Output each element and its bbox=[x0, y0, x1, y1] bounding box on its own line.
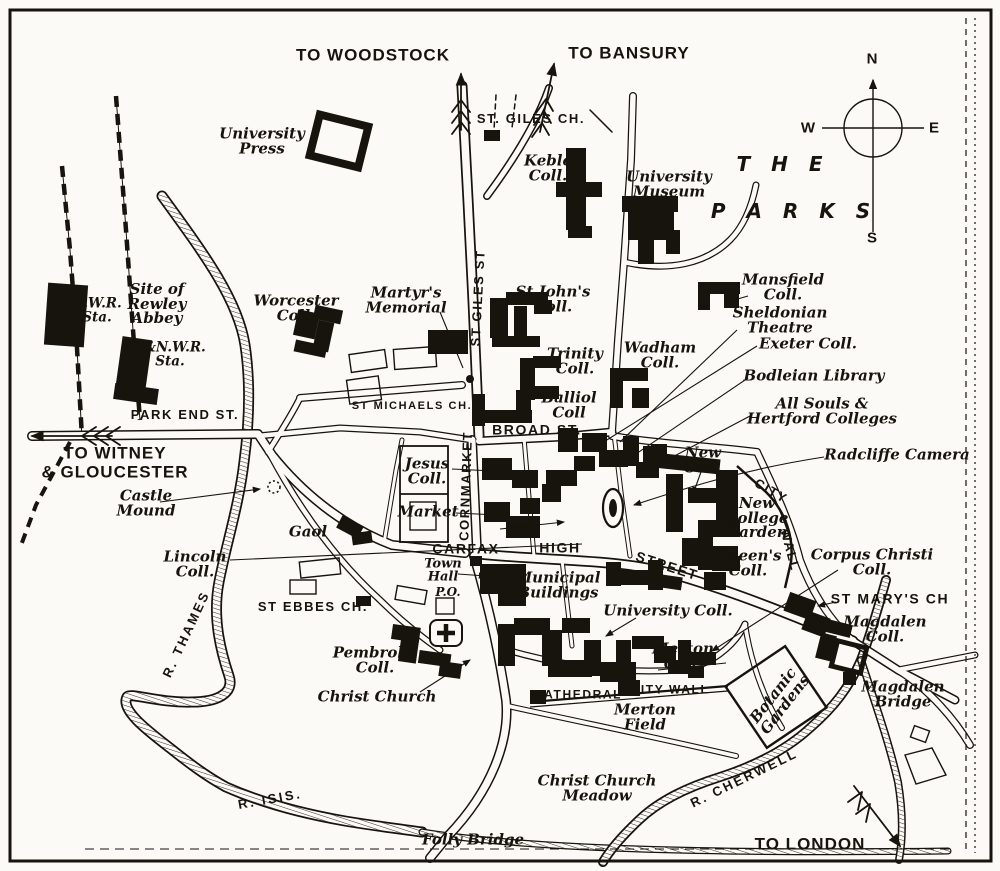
label-exeter-college: Exeter Coll. bbox=[759, 337, 857, 352]
label-river-isis: R. ISIS. bbox=[237, 787, 303, 811]
label-the-parks-line2: P A R K S bbox=[711, 201, 877, 221]
label-botanic-gardens: Botanic Gardens bbox=[746, 663, 812, 736]
label-st-giles-street: ST GILES ST bbox=[469, 249, 488, 347]
label-cornmarket: CORNMARKET bbox=[457, 431, 474, 541]
label-st-johns-college: St John's Coll. bbox=[516, 284, 591, 313]
label-compass-n: N bbox=[867, 52, 878, 67]
label-christ-church-meadow: Christ Church Meadow bbox=[538, 773, 657, 802]
label-wadham-college: Wadham Coll. bbox=[624, 340, 696, 369]
label-street: STREET bbox=[634, 549, 700, 583]
label-new-college: New Coll. bbox=[684, 445, 723, 474]
label-cathedral: CATHEDRAL bbox=[534, 689, 622, 702]
label-christ-church: Christ Church bbox=[318, 690, 437, 705]
label-river-thames: R. THAMES bbox=[160, 589, 212, 680]
label-corpus-christi-college: Corpus Christi Coll. bbox=[811, 547, 933, 576]
label-market: Market bbox=[397, 505, 458, 520]
oxford-street-map: TO WOODSTOCKTO BANSURYUniversity PressST… bbox=[0, 0, 1000, 871]
label-to-woodstock: TO WOODSTOCK bbox=[296, 47, 450, 66]
label-jesus-college: Jesus Coll. bbox=[405, 456, 449, 485]
label-university-press: University Press bbox=[219, 126, 305, 155]
label-gaol: Gaol bbox=[289, 525, 327, 540]
label-keble-college: Keble Coll. bbox=[524, 153, 572, 182]
label-balliol-college: Balliol Coll bbox=[541, 390, 596, 419]
label-lincoln-college: Lincoln Coll. bbox=[164, 549, 227, 578]
label-queens-college: Queen's Coll. bbox=[714, 548, 781, 577]
label-compass-s: S bbox=[867, 231, 877, 246]
label-university-museum: University Museum bbox=[626, 169, 712, 198]
label-merton-college: Merton Coll. bbox=[652, 641, 714, 670]
label-lnwr-station: L&N.W.R. Sta. bbox=[134, 342, 206, 369]
label-park-end-street: PARK END ST. bbox=[131, 408, 240, 422]
label-castle-mound: Castle Mound bbox=[117, 488, 176, 517]
label-to-london: TO LONDON bbox=[755, 836, 866, 855]
label-high: HIGH bbox=[539, 541, 580, 556]
label-bodleian-library: Bodleian Library bbox=[744, 369, 885, 384]
label-compass-w: W bbox=[801, 121, 815, 136]
label-magdalen-bridge: Magdalen Bridge bbox=[861, 679, 944, 708]
label-worcester-college: Worcester Coll. bbox=[253, 293, 338, 322]
label-martyrs-memorial: Martyr's Memorial bbox=[365, 285, 446, 314]
label-st-michaels-church: ST MICHAELS CH. bbox=[352, 401, 473, 413]
label-river-cherwell: R. CHERWELL bbox=[688, 746, 799, 809]
label-st-ebbes-church: ST EBBES CH. bbox=[258, 600, 368, 614]
label-broad-street: BROAD ST. bbox=[492, 423, 582, 438]
label-to-witney-gloucester: TO WITNEY & GLOUCESTER bbox=[41, 444, 188, 481]
label-city-wall-south: CITY WALL bbox=[631, 684, 710, 697]
map-labels-layer: TO WOODSTOCKTO BANSURYUniversity PressST… bbox=[0, 0, 1000, 871]
label-radcliffe-camera: Radcliffe Camera bbox=[824, 448, 969, 463]
label-merton-field: Merton Field bbox=[614, 702, 676, 731]
label-pembroke-college: Pembroke Coll. bbox=[333, 645, 418, 674]
label-trinity-college: Trinity Coll. bbox=[547, 346, 603, 375]
label-gwr-station: G.W.R. Sta. bbox=[72, 298, 121, 325]
label-mansfield-college: Mansfield Coll. bbox=[742, 272, 824, 301]
label-the-parks-line1: T H E bbox=[737, 154, 830, 174]
label-st-marys-church: ST MARY'S CH bbox=[831, 592, 949, 607]
label-to-bansury: TO BANSURY bbox=[568, 45, 689, 64]
label-magdalen-college: Magdalen Coll. bbox=[843, 614, 926, 643]
label-compass-e: E bbox=[929, 121, 939, 136]
label-folly-bridge: Folly Bridge bbox=[422, 833, 524, 848]
label-municipal-buildings: Municipal Buildings bbox=[516, 570, 601, 599]
label-rewley-abbey: Site of Rewley Abbey bbox=[128, 282, 187, 326]
label-town-hall: Town Hall bbox=[424, 558, 462, 583]
label-sheldonian-theatre: Sheldonian Theatre bbox=[733, 305, 828, 334]
label-university-college: University Coll. bbox=[603, 604, 732, 619]
label-carfax: CARFAX bbox=[432, 542, 499, 557]
label-st-giles-church: ST. GILES CH. bbox=[477, 112, 585, 126]
label-all-souls-hertford: All Souls & Hertford Colleges bbox=[747, 396, 897, 425]
label-post-office: P.O. bbox=[435, 587, 460, 599]
label-new-college-garden: New College Garden bbox=[726, 496, 789, 540]
